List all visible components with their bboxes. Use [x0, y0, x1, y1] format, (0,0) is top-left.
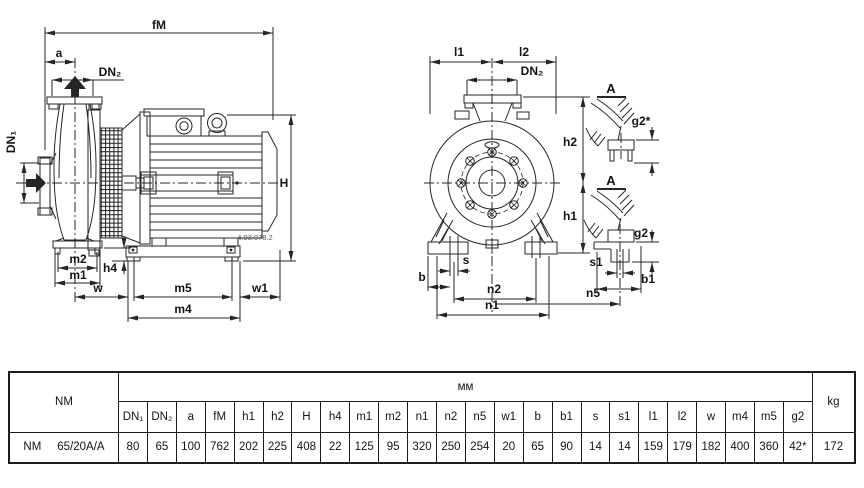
dim-column-header: m2: [379, 401, 408, 432]
dim-label-w1: w1: [251, 281, 268, 295]
terminal-box: [147, 116, 201, 136]
dim-column-header: m4: [726, 401, 755, 432]
dim-value-cell: 400: [726, 432, 755, 463]
discharge-flow-arrow: [64, 76, 86, 97]
dim-label-m4: m4: [174, 302, 192, 316]
dim-value-cell: 80: [119, 432, 148, 463]
dim-label-fm: fM: [152, 18, 166, 32]
dim-column-header: DN₂: [147, 401, 176, 432]
table-values-row: NM65/20A/A 80651007622022254082212595320…: [9, 432, 855, 463]
dim-value-cell: 14: [581, 432, 610, 463]
catalog-sheet: fM a DN₂ DN₁ H h4 m2 m1 w m5 w1 m4 4.93.…: [0, 0, 864, 488]
dim-column-header: h2: [263, 401, 292, 432]
dim-value-cell: 42*: [783, 432, 812, 463]
dim-value-cell: 95: [379, 432, 408, 463]
cable-gland: [176, 118, 192, 134]
dim-column-header: b1: [552, 401, 581, 432]
dim-column-header: s: [581, 401, 610, 432]
foot-detail-a-bottom: [495, 189, 659, 308]
dim-label-g2-star: g2*: [632, 114, 651, 128]
dim-value-cell: 22: [321, 432, 350, 463]
dim-label-b1: b1: [641, 272, 655, 286]
dim-value-cell: 90: [552, 432, 581, 463]
dim-label-h1: h1: [563, 209, 577, 223]
dim-label-w: w: [92, 281, 103, 295]
dim-label-a: a: [56, 46, 63, 60]
model-cell: NM65/20A/A: [9, 432, 119, 463]
lifting-eyebolt: [208, 114, 227, 133]
dim-value-cell: 225: [263, 432, 292, 463]
table-unit-header: мм: [119, 372, 813, 401]
model-series: NM: [23, 441, 41, 453]
dim-column-header: l2: [668, 401, 697, 432]
electric-motor: [140, 109, 277, 246]
dim-value-cell: 182: [697, 432, 726, 463]
kg-value-cell: 172: [813, 432, 856, 463]
table-model-header: NM: [9, 372, 119, 432]
detail-a-top-title: A: [606, 81, 616, 96]
table-columns-row: DN₁DN₂afMh1h2Hh4m1m2n1n2n5w1bb1ss1l1l2wm…: [9, 401, 855, 432]
dim-value-cell: 360: [754, 432, 783, 463]
dim-value-cell: 408: [292, 432, 321, 463]
table-kg-header: kg: [813, 372, 856, 432]
dim-label-dn1: DN₁: [4, 131, 18, 153]
dim-value-cell: 762: [205, 432, 234, 463]
suction-flow-arrow: [26, 173, 46, 193]
dim-column-header: n2: [436, 401, 465, 432]
dim-label-h4: h4: [103, 261, 117, 275]
drawing-number: 4.93.078.2: [237, 233, 272, 242]
dim-value-cell: 14: [610, 432, 639, 463]
dim-column-header: DN₁: [119, 401, 148, 432]
detail-a-bottom-title: A: [606, 173, 616, 188]
dim-column-header: m5: [754, 401, 783, 432]
dim-label-m2: m2: [69, 252, 87, 266]
dim-column-header: H: [292, 401, 321, 432]
model-size: 65/20A/A: [57, 441, 104, 453]
dim-label-s: s: [463, 253, 470, 267]
coupling-guard-mesh: [100, 128, 122, 238]
pump-dimensional-drawing: fM a DN₂ DN₁ H h4 m2 m1 w m5 w1 m4 4.93.…: [0, 0, 864, 366]
dim-label-m1: m1: [69, 268, 87, 282]
dim-label-g2: g2: [634, 226, 648, 240]
dim-value-cell: 179: [668, 432, 697, 463]
dim-column-header: w1: [494, 401, 523, 432]
baseplate: [126, 246, 240, 261]
pump-motor-side-view: [16, 27, 296, 322]
dim-label-b: b: [418, 270, 425, 284]
dim-value-cell: 100: [176, 432, 205, 463]
fan-cover: [262, 132, 277, 231]
dim-label-m5: m5: [174, 281, 192, 295]
dim-column-header: b: [523, 401, 552, 432]
dim-label-l2: l2: [519, 45, 529, 59]
dim-label-n1: n1: [485, 298, 499, 312]
dim-label-dn2-side: DN₂: [99, 65, 122, 79]
dim-column-header: h4: [321, 401, 350, 432]
dim-value-cell: 202: [234, 432, 263, 463]
dim-column-header: h1: [234, 401, 263, 432]
dim-value-cell: 250: [436, 432, 465, 463]
dim-value-cell: 125: [350, 432, 379, 463]
foot-detail-a-top: [586, 97, 659, 176]
dim-column-header: fM: [205, 401, 234, 432]
dim-label-n2: n2: [487, 282, 501, 296]
dim-value-cell: 65: [147, 432, 176, 463]
dim-column-header: l1: [639, 401, 668, 432]
terminal-box-lid: [144, 109, 204, 116]
dim-label-l1: l1: [454, 45, 464, 59]
dim-value-cell: 20: [494, 432, 523, 463]
dim-column-header: m1: [350, 401, 379, 432]
dim-label-h2: h2: [563, 135, 577, 149]
dim-value-cell: 159: [639, 432, 668, 463]
dim-column-header: n5: [465, 401, 494, 432]
dim-value-cell: 254: [465, 432, 494, 463]
dim-value-cell: 320: [408, 432, 437, 463]
dim-column-header: s1: [610, 401, 639, 432]
dim-label-dn2-front: DN₂: [521, 64, 544, 78]
pump-front-view: [424, 56, 590, 319]
dim-column-header: w: [697, 401, 726, 432]
dim-value-cell: 65: [523, 432, 552, 463]
dim-label-n5: n5: [586, 286, 600, 300]
dim-column-header: a: [176, 401, 205, 432]
dim-column-header: n1: [408, 401, 437, 432]
dim-label-h-cap: H: [280, 176, 289, 190]
dim-column-header: g2: [783, 401, 812, 432]
dim-label-s1: s1: [589, 255, 603, 269]
dimension-table: NM мм kg DN₁DN₂afMh1h2Hh4m1m2n1n2n5w1bb1…: [8, 371, 856, 464]
